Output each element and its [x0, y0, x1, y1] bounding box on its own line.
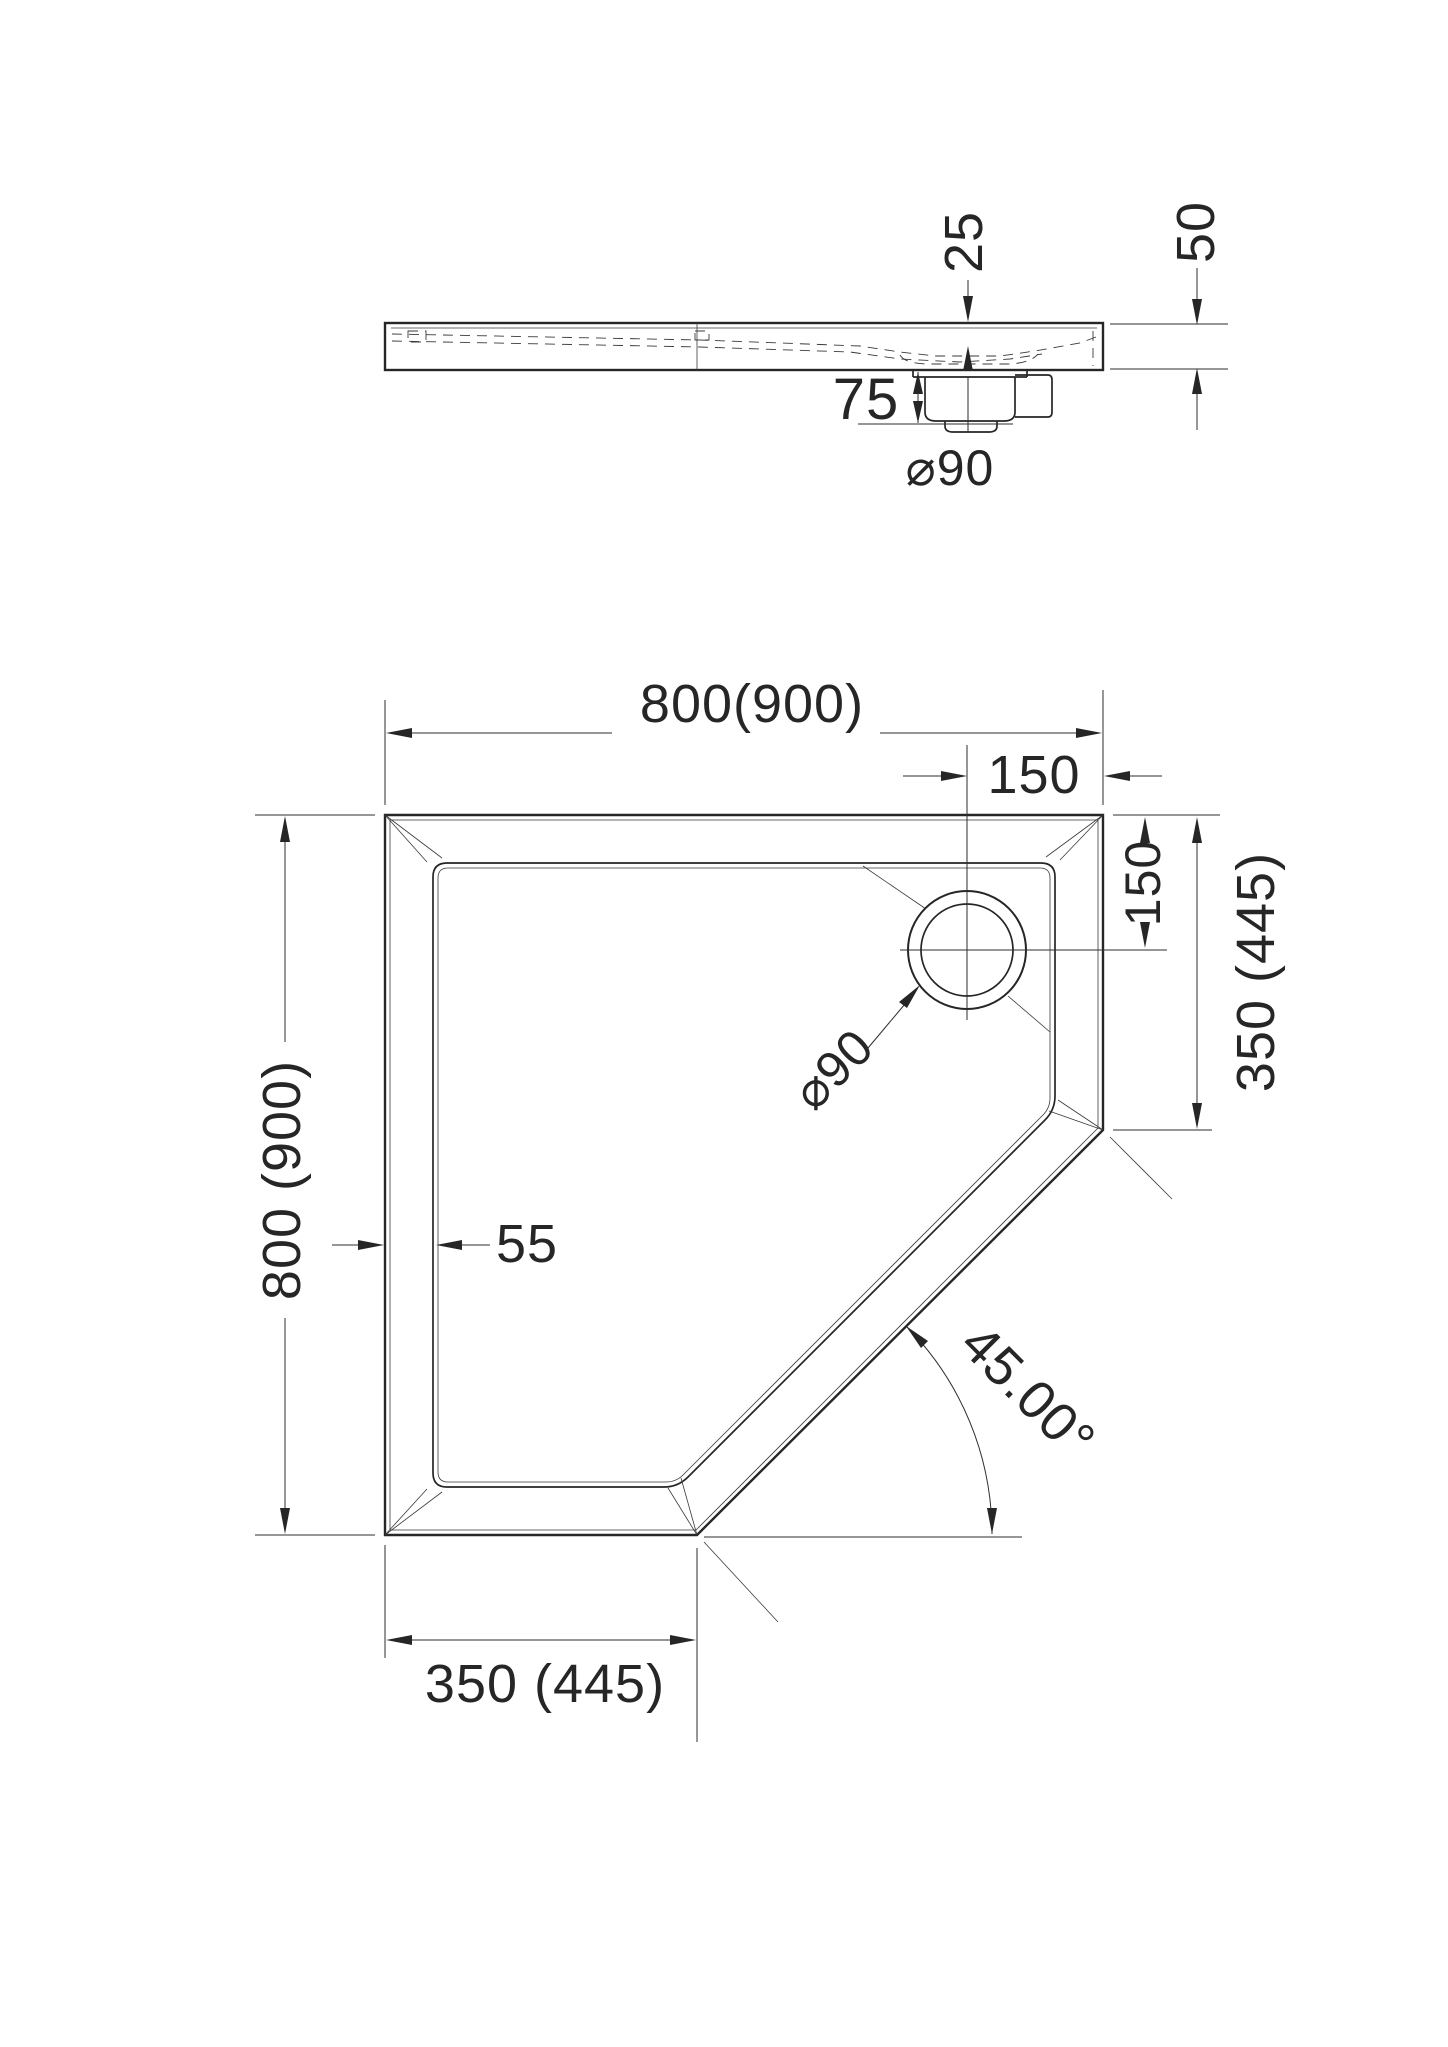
dim-angle-45: 45.00°: [704, 1313, 1107, 1537]
trap-side-outlet: [1015, 375, 1052, 417]
dim-55-arrow-left: [436, 1240, 462, 1250]
dim-800-top-label: 800(900): [640, 674, 864, 734]
dim-350-bottom: 350 (445): [385, 1545, 697, 1742]
tray-outline: [385, 815, 1103, 1535]
miter-line-bottom: [704, 1542, 778, 1622]
chamfer-tr-1: [1060, 815, 1103, 860]
dim-150-top: 150: [903, 745, 1162, 805]
chamfer-tr-2: [1046, 815, 1103, 857]
dim-350-right-label: 350 (445): [1226, 852, 1286, 1092]
dim-150-right: 150: [1113, 815, 1220, 948]
chamfer-bl-2: [385, 1492, 442, 1535]
basin-floor-hidden-line-2: [392, 341, 1042, 362]
dim-d90-plan-label: ⌀90: [782, 1018, 884, 1120]
dim-350b-arrow-right: [670, 1635, 696, 1645]
dim-d90-section-label: ⌀90: [906, 440, 995, 496]
dim-800-arrow-left: [386, 728, 412, 738]
chamfer-dt-1: [1058, 1100, 1103, 1130]
dim-800-left-label: 800 (900): [252, 1060, 312, 1300]
tray-outline-inner-line: [390, 820, 1098, 1530]
dim-75-label: 75: [833, 367, 900, 432]
side-view: 25 75 50 ⌀90: [385, 201, 1228, 496]
drain: ⌀90: [782, 745, 1167, 1120]
chamfer-db-1: [668, 1488, 697, 1535]
chamfer-bl-1: [385, 1489, 427, 1535]
rim-edge: [433, 863, 1055, 1487]
dim-50-arrow-up: [1192, 368, 1202, 394]
dim-150t-arrow-left: [1104, 771, 1130, 781]
dim-350b-arrow-left: [386, 1635, 412, 1645]
dim-50: 50: [1110, 201, 1228, 430]
dim-350r-arrow-up: [1192, 817, 1202, 843]
dim-150-top-label: 150: [987, 745, 1080, 805]
trap-body: [925, 377, 1015, 421]
dim-800-left: 800 (900): [252, 815, 375, 1535]
chamfer-dt-2: [1049, 1111, 1103, 1130]
dim-800l-arrow-down: [280, 1508, 290, 1534]
chamfer-tl-2: [385, 815, 442, 858]
dim-800l-arrow-up: [280, 816, 290, 842]
dim-350-bottom-label: 350 (445): [425, 1654, 665, 1714]
plan-view: ⌀90 800(900) 150 800 (: [252, 674, 1286, 1742]
floor-detail-hidden-1: [408, 331, 426, 342]
rim-edge-inner-line: [438, 868, 1050, 1482]
dim-55: 55: [332, 1214, 558, 1274]
dim-150t-arrow-right: [941, 771, 967, 781]
dim-75-arrow-up: [913, 372, 923, 394]
dim-50-arrow-down: [1192, 299, 1202, 325]
trap-cap: [945, 421, 997, 432]
dim-25-arrow-up: [963, 346, 973, 371]
drain-leader-arrow: [899, 985, 920, 1008]
drain-leader-line: [868, 1004, 905, 1048]
rim-detail-line-2: [1008, 996, 1050, 1032]
dim-55-label: 55: [496, 1214, 558, 1274]
tray-section-outline: [385, 323, 1103, 370]
dim-55-arrow-right: [358, 1240, 384, 1250]
dim-150-right-label: 150: [1115, 840, 1171, 926]
miter-line-top: [1110, 1137, 1172, 1199]
dim-50-label: 50: [1166, 201, 1226, 263]
dim-350r-arrow-down: [1192, 1103, 1202, 1129]
angle-arrow-bottom: [987, 1508, 997, 1534]
dim-800-arrow-right: [1076, 728, 1102, 738]
chamfer-db-2: [681, 1478, 697, 1535]
dim-angle-label: 45.00°: [949, 1313, 1106, 1470]
chamfer-tl-1: [385, 815, 427, 862]
rim-detail-line-1: [863, 866, 926, 909]
drawing-page: 25 75 50 ⌀90: [0, 0, 1448, 2047]
angle-arrow-top: [906, 1326, 928, 1348]
basin-floor-hidden-line: [392, 334, 1096, 356]
dim-25: 25: [934, 211, 994, 371]
dim-150r-arrow-up: [1140, 817, 1150, 843]
dim-25-arrow-down: [963, 296, 973, 322]
dim-25-label: 25: [934, 211, 994, 273]
dim-75-arrow-down: [913, 401, 923, 423]
